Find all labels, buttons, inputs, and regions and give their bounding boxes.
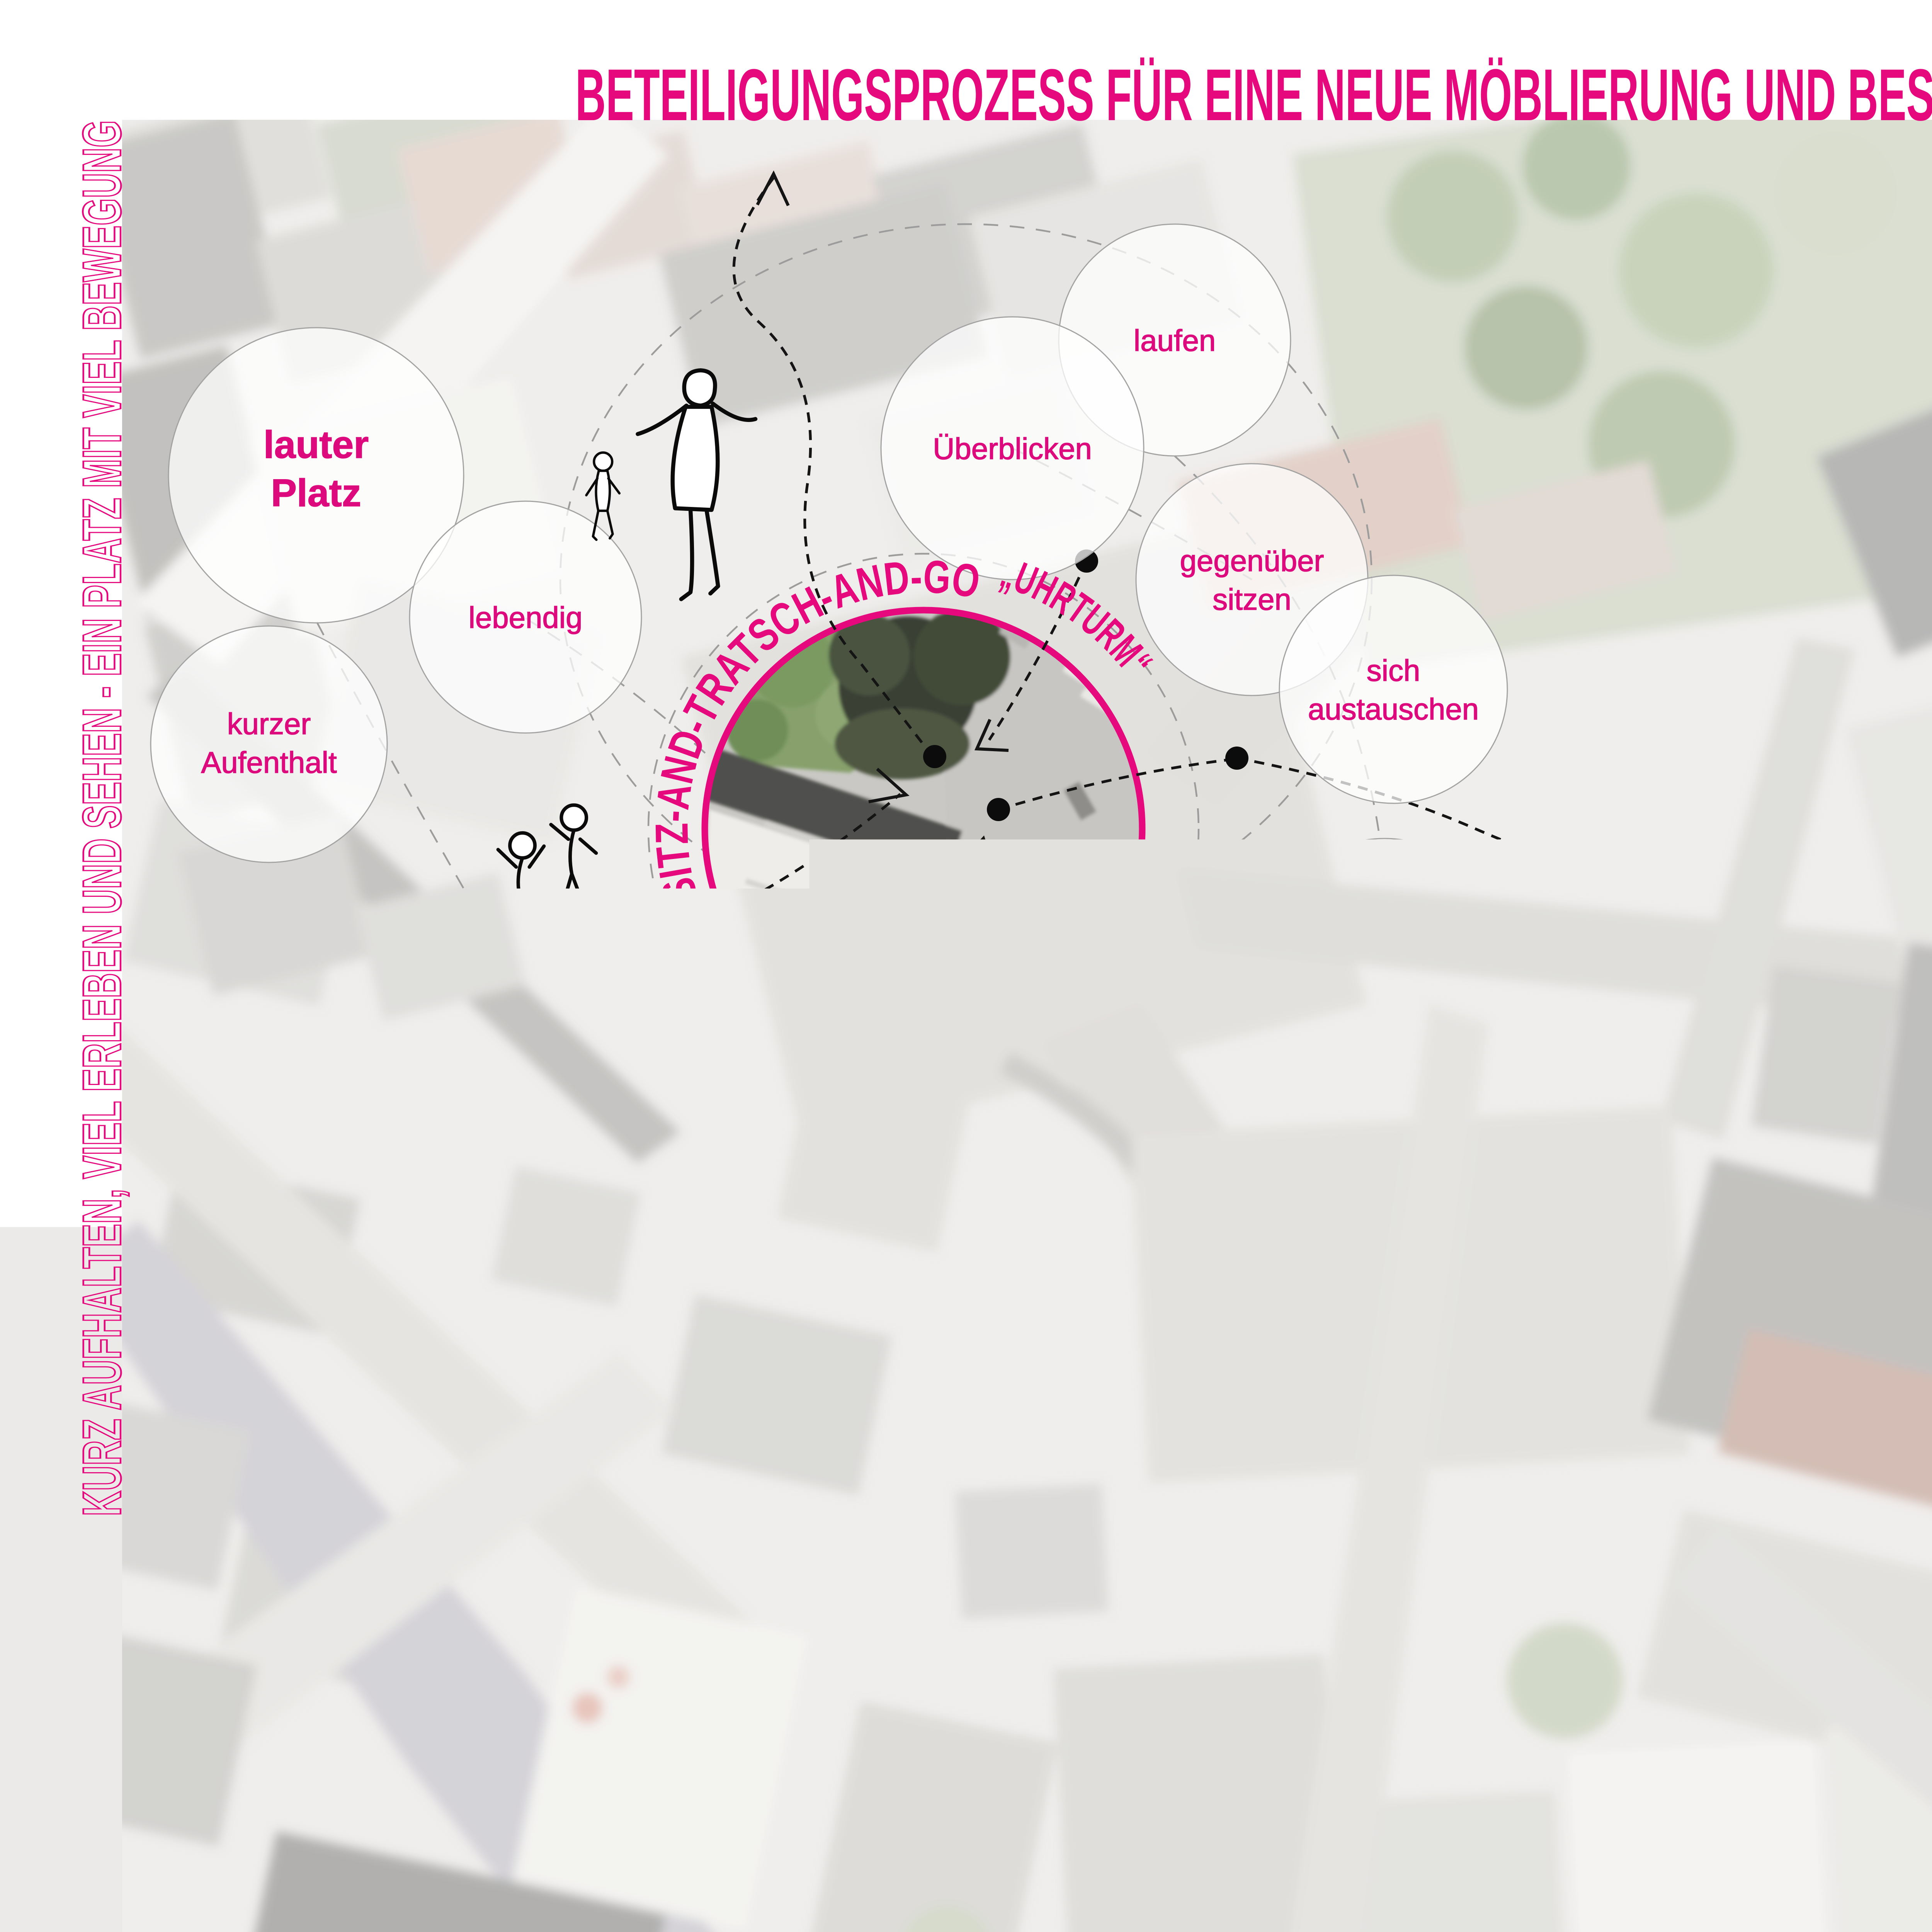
svg-text:sitzen: sitzen (1213, 582, 1291, 616)
svg-text:Sport: Sport (1713, 946, 1786, 980)
svg-text:gemütlich: gemütlich (1776, 1473, 1905, 1507)
svg-text:Überblicken: Überblicken (933, 432, 1092, 466)
svg-text:in der Trafik: in der Trafik (382, 1259, 539, 1293)
svg-text:sichere: sichere (1050, 1138, 1147, 1172)
svg-text:Verbindungen: Verbindungen (1005, 1176, 1191, 1210)
svg-text:gute: gute (1355, 919, 1414, 953)
svg-text:Aufenthalt: Aufenthalt (201, 745, 337, 779)
svg-text:eine: eine (432, 1182, 489, 1216)
svg-text:kurzer: kurzer (227, 707, 311, 741)
svg-text:Platz: Platz (271, 471, 361, 515)
svg-text:und weiter: und weiter (587, 1244, 726, 1278)
svg-text:lauter: lauter (264, 423, 369, 466)
svg-text:Platz: Platz (1806, 1704, 1896, 1747)
svg-text:sich: sich (1367, 653, 1420, 687)
svg-text:Ecke: Ecke (959, 1722, 1026, 1756)
svg-text:…ein Eis: …ein Eis (597, 1167, 717, 1201)
svg-text:BETEILIGUNGSPROZESS FÜR EINE N: BETEILIGUNGSPROZESS FÜR EINE NEUE MÖBLIE… (575, 54, 1932, 136)
svg-text:Infrastruktur: Infrastruktur (1304, 958, 1465, 992)
svg-text:LEBENSWERTES: LEBENSWERTES (164, 1893, 306, 1915)
svg-text:Bänke: Bänke (1035, 1583, 1121, 1617)
svg-text:INITIATIVE: INITIATIVE (149, 1785, 168, 1890)
svg-text:laufen: laufen (1134, 323, 1216, 357)
svg-text:lebendig: lebendig (469, 600, 583, 634)
svg-text:ANDRITZ: ANDRITZ (308, 1804, 327, 1900)
svg-text:Tische und: Tische und (1005, 1544, 1151, 1578)
svg-text:Essen und: Essen und (793, 1511, 935, 1545)
svg-text:bleiben: bleiben (1568, 1672, 1665, 1706)
svg-text:länger: länger (1575, 1633, 1659, 1667)
svg-text:KURZ AUFHALTEN, VIEL ERLEBEN U: KURZ AUFHALTEN, VIEL ERLEBEN UND SEHEN -… (71, 120, 132, 1516)
svg-text:Trinken: Trinken (814, 1550, 913, 1584)
svg-text:geschützte: geschützte (920, 1684, 1066, 1718)
svg-text:austauschen: austauschen (1308, 692, 1479, 726)
svg-text:Zeitschrift: Zeitschrift (395, 1221, 526, 1255)
svg-text:WC: WC (1196, 992, 1231, 1015)
svg-text:gegenüber: gegenüber (1180, 544, 1324, 578)
svg-text:ruhiger: ruhiger (1785, 1656, 1918, 1699)
svg-text:kaufen…: kaufen… (400, 1298, 521, 1332)
svg-text:essen: essen (617, 1205, 697, 1239)
